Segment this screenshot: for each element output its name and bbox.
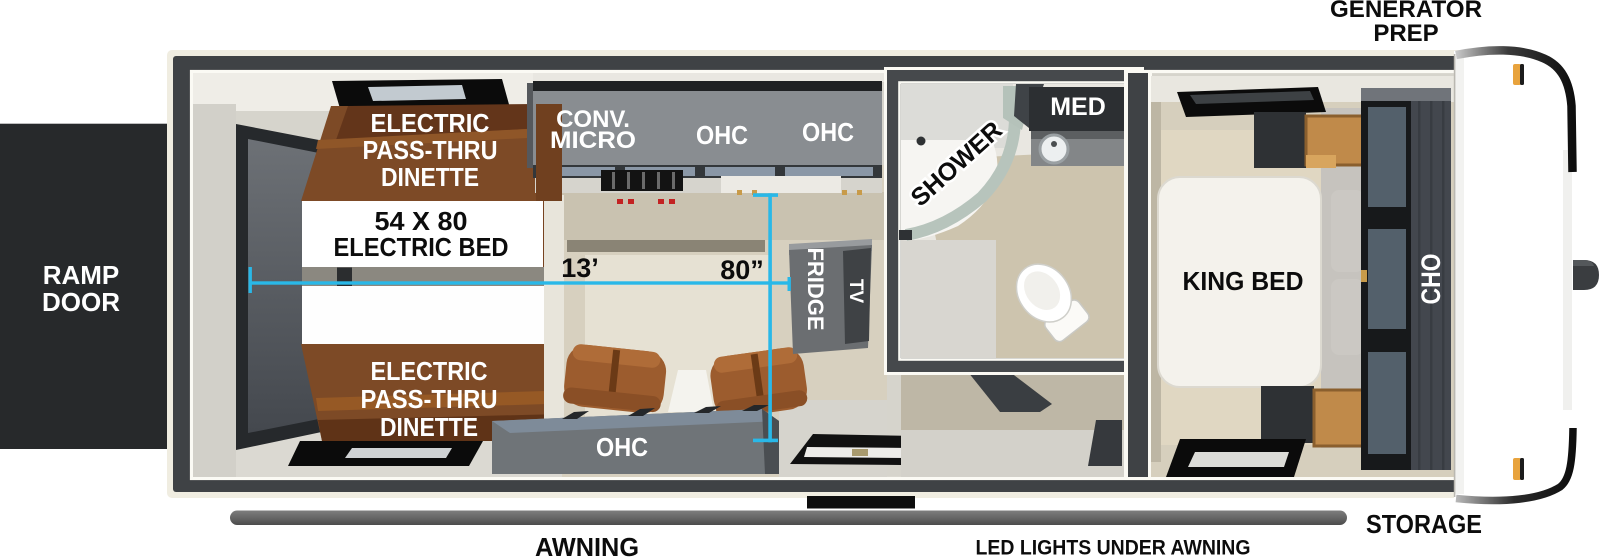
svg-text:PASS-THRU: PASS-THRU [363,135,498,165]
svg-text:DINETTE: DINETTE [381,162,479,192]
svg-text:MED: MED [1050,93,1106,121]
svg-text:OHC: OHC [802,117,854,147]
svg-text:LED LIGHTS UNDER AWNING: LED LIGHTS UNDER AWNING [976,536,1251,560]
svg-text:13’: 13’ [561,253,599,283]
svg-text:KING BED: KING BED [1183,266,1304,296]
svg-text:RAMP: RAMP [43,260,120,290]
svg-text:FRIDGE: FRIDGE [803,247,828,330]
svg-text:ELECTRIC: ELECTRIC [371,108,490,138]
svg-text:PREP: PREP [1373,20,1438,47]
svg-text:OHC: OHC [596,432,648,462]
svg-text:TV: TV [845,279,866,304]
svg-text:ELECTRIC BED: ELECTRIC BED [334,232,509,262]
svg-text:STORAGE: STORAGE [1366,509,1482,539]
svg-text:AWNING: AWNING [535,532,639,560]
svg-text:DINETTE: DINETTE [380,412,478,442]
svg-text:CHO: CHO [1416,254,1446,305]
svg-text:OHC: OHC [696,120,748,150]
svg-text:ELECTRIC: ELECTRIC [371,356,488,386]
svg-text:DOOR: DOOR [42,287,120,317]
svg-text:80”: 80” [720,255,764,285]
svg-text:MICRO: MICRO [550,127,636,154]
svg-text:PASS-THRU: PASS-THRU [361,384,498,414]
